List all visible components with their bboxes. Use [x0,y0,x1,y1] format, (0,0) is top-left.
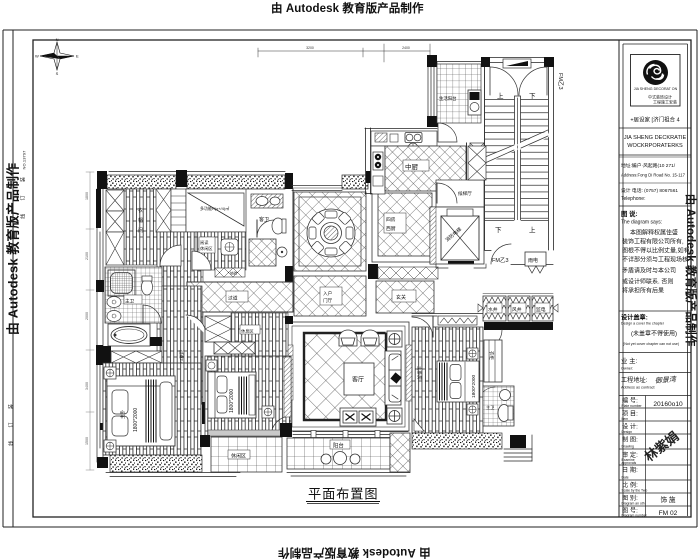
svg-text:阳台: 阳台 [333,442,344,450]
svg-text:Date: Date [622,476,629,480]
svg-text:Item: Item [622,417,629,421]
svg-text:1800*2000: 1800*2000 [229,389,235,413]
svg-text:W: W [35,54,39,59]
svg-text:过道: 过道 [228,295,238,302]
svg-text:休闲区: 休闲区 [200,245,213,252]
svg-text:Drawing: Drawing [622,445,635,449]
svg-text:(Not yet cover chapter can not: (Not yet cover chapter can not use) [623,342,679,346]
svg-text:N: N [56,37,59,42]
svg-text:图 说:: 图 说: [621,209,638,218]
svg-text:Owner:: Owner: [621,367,633,371]
svg-text:(未盖章不得使用): (未盖章不得使用) [631,330,677,338]
svg-text:或设计师联系. 否则: 或设计师联系. 否则 [622,278,673,286]
svg-text:装饰工程有限公司所有,: 装饰工程有限公司所有, [622,238,684,246]
svg-text:四房: 四房 [386,216,396,223]
svg-text:图根不得以比例丈量,如有: 图根不得以比例丈量,如有 [622,247,690,255]
svg-text:下: 下 [495,226,502,234]
svg-text:饰 施: 饰 施 [660,495,675,504]
svg-text:Telephone:: Telephone: [621,196,645,202]
svg-text:Design: Design [622,430,633,434]
svg-text:休息区: 休息区 [241,328,254,335]
svg-text:不详部分须与工程现场核: 不详部分须与工程现场核 [622,256,688,264]
svg-text:Diagram an oth: Diagram an oth [622,502,645,506]
svg-text:设计 电话: (0757) 8067561: 设计 电话: (0757) 8067561 [621,187,678,194]
svg-text:2400: 2400 [402,46,410,50]
svg-text:间: 间 [138,227,143,234]
svg-text:日 期:: 日 期: [622,466,638,474]
svg-text:Scale by the Two: Scale by the Two [622,489,648,493]
svg-text:FM乙3: FM乙3 [557,73,564,90]
svg-text:1800*2000: 1800*2000 [133,408,139,432]
svg-text:客卫: 客卫 [259,216,269,223]
svg-text:主卫: 主卫 [125,298,135,304]
svg-text:主卫: 主卫 [486,404,494,410]
svg-text:JIA SHENG DECORAT ON: JIA SHENG DECORAT ON [634,87,678,91]
svg-text:业 主:: 业 主: [621,356,638,365]
svg-text:雨电: 雨电 [528,257,538,264]
svg-text:上: 上 [529,225,536,234]
svg-text:候梯厅: 候梯厅 [458,190,472,197]
svg-text:S: S [56,71,59,76]
svg-text:E: E [76,54,79,59]
svg-text:水井: 水井 [488,306,498,313]
svg-text:玄关: 玄关 [396,294,406,301]
svg-text:1500: 1500 [85,437,89,445]
svg-text:主卧: 主卧 [119,409,126,419]
svg-text:生活阳台: 生活阳台 [439,95,457,102]
svg-text:2100: 2100 [85,252,89,260]
svg-text:1800: 1800 [85,192,89,200]
svg-text:工程地址:: 工程地址: [621,376,648,384]
svg-text:Design a cover the chapter: Design a cover the chapter [621,322,665,326]
svg-text:监电: 监电 [536,306,546,313]
svg-text:FM乙3: FM乙3 [492,257,509,264]
svg-text:多功能R(x+/4)㎡: 多功能R(x+/4)㎡ [200,205,229,211]
svg-text:帽: 帽 [138,217,143,224]
svg-text:Diagram number: Diagram number [622,514,648,518]
svg-text:Plate number: Plate number [622,404,643,408]
svg-text:地砖: 地砖 [230,271,238,276]
svg-text:工程施工安装: 工程施工安装 [653,99,677,105]
svg-text:JIA SHENG DECKRATIE: JIA SHENG DECKRATIE [624,135,687,141]
svg-text:制 图:: 制 图: [622,436,638,444]
svg-text:Address as contract: Address as contract [621,386,655,390]
svg-text:矛盾请及时与本公司: 矛盾请及时与本公司 [622,267,676,275]
svg-text:入户: 入户 [323,290,332,297]
svg-text:地址:鳊户·风起路(10 271/: 地址:鳊户·风起路(10 271/ [621,162,676,169]
svg-text:1800*2000: 1800*2000 [471,374,477,398]
svg-text:approvals: approvals [622,461,637,465]
svg-text:+居设家 [济门祖合 4: +居设家 [济门祖合 4 [630,116,679,124]
svg-text:衣柜: 衣柜 [488,351,495,360]
svg-text:客厅: 客厅 [352,376,364,384]
svg-text:御景湾: 御景湾 [655,375,678,385]
svg-text:阅读: 阅读 [200,239,208,246]
svg-text:西厨: 西厨 [386,226,396,232]
svg-text:本图解释权属佳盛: 本图解释权属佳盛 [630,229,678,237]
svg-text:平面布置图: 平面布置图 [308,487,378,502]
svg-text:3400: 3400 [85,382,89,390]
svg-text:中厨: 中厨 [405,162,419,171]
svg-text:3200: 3200 [306,46,314,50]
svg-text:20160o10: 20160o10 [653,401,683,408]
svg-text:主卧房: 主卧房 [416,366,423,380]
svg-text:The diagram says:: The diagram says: [621,220,662,226]
svg-text:衣: 衣 [138,207,143,214]
svg-text:FM 02: FM 02 [659,510,678,517]
svg-text:休闲区: 休闲区 [231,453,246,460]
svg-text:2000: 2000 [85,312,89,320]
svg-text:WOCKRPORATERKS: WOCKRPORATERKS [627,143,683,149]
svg-text:Address:Fong Di Road No. 15-11: Address:Fong Di Road No. 15-117 [621,173,686,178]
svg-text:上: 上 [497,91,504,100]
svg-text:门厅: 门厅 [323,297,333,304]
svg-text:设计盖章:: 设计盖章: [621,314,648,322]
svg-text:下: 下 [529,92,536,100]
svg-text:将承担所有后果: 将承担所有后果 [622,287,664,295]
svg-text:风井: 风井 [512,306,522,313]
